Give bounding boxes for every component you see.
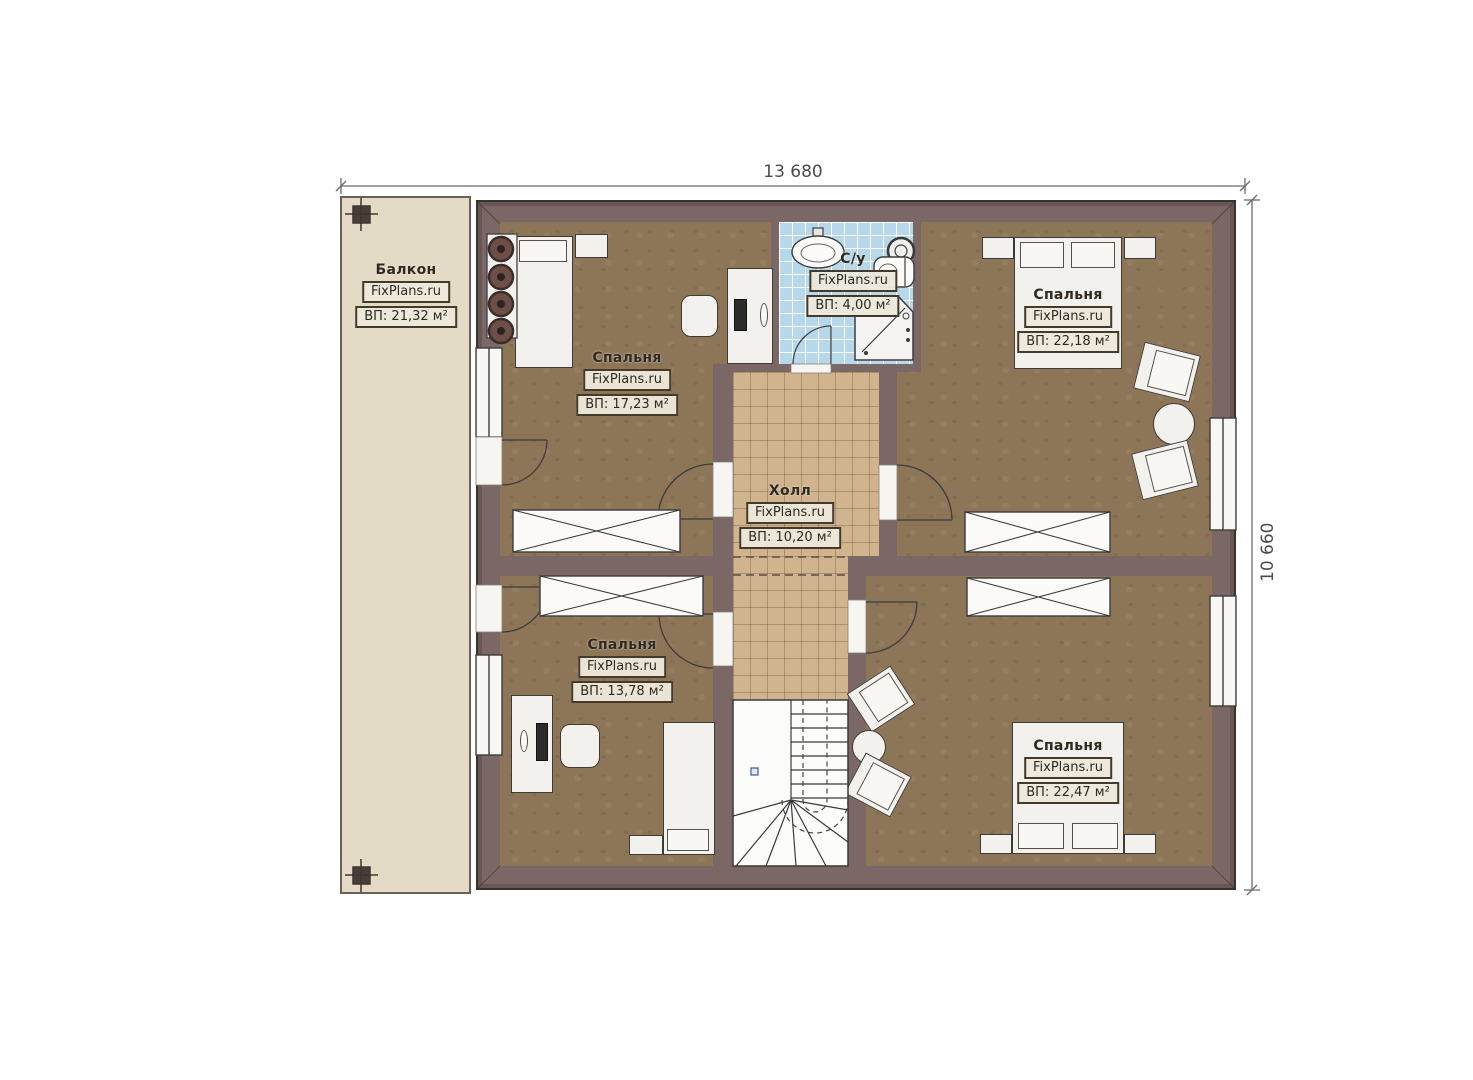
room-name: Спальня <box>587 637 656 653</box>
area-box: ВП: 17,23 м² <box>576 394 678 416</box>
area-box: ВП: 21,32 м² <box>355 306 457 328</box>
hall-label: Холл FixPlans.ru ВП: 10,20 м² <box>739 483 841 549</box>
room-name: Спальня <box>1033 287 1102 303</box>
balcony-label: Балкон FixPlans.ru ВП: 21,32 м² <box>355 262 457 328</box>
watermark-box: FixPlans.ru <box>583 369 671 391</box>
width-dimension: 13 680 <box>763 162 822 182</box>
watermark-box: FixPlans.ru <box>362 281 450 303</box>
room-name: Балкон <box>376 262 437 278</box>
ceiling-break-lines <box>733 557 848 575</box>
bathroom-label: С/у FixPlans.ru ВП: 4,00 м² <box>806 251 899 317</box>
area-box: ВП: 4,00 м² <box>806 295 899 317</box>
room-name: С/у <box>840 251 865 267</box>
height-dimension: 10 660 <box>1258 523 1278 582</box>
speaker-shelf-icon <box>487 234 517 343</box>
area-box: ВП: 10,20 м² <box>739 527 841 549</box>
bedroom-top-left-label: Спальня FixPlans.ru ВП: 17,23 м² <box>576 350 678 416</box>
room-name: Спальня <box>1033 738 1102 754</box>
area-box: ВП: 13,78 м² <box>571 681 673 703</box>
room-name: Холл <box>769 483 811 499</box>
watermark-box: FixPlans.ru <box>1024 306 1112 328</box>
watermark-box: FixPlans.ru <box>578 656 666 678</box>
watermark-box: FixPlans.ru <box>1024 757 1112 779</box>
staircase-icon <box>733 700 848 866</box>
plan-linework <box>0 0 1473 1080</box>
watermark-box: FixPlans.ru <box>746 502 834 524</box>
bedroom-bottom-right-label: Спальня FixPlans.ru ВП: 22,47 м² <box>1017 738 1119 804</box>
bedroom-top-right-label: Спальня FixPlans.ru ВП: 22,18 м² <box>1017 287 1119 353</box>
bedroom-bottom-left-label: Спальня FixPlans.ru ВП: 13,78 м² <box>571 637 673 703</box>
watermark-box: FixPlans.ru <box>809 270 897 292</box>
floor-plan: Балкон FixPlans.ru ВП: 21,32 м² Спальня … <box>0 0 1473 1080</box>
area-box: ВП: 22,18 м² <box>1017 331 1119 353</box>
room-name: Спальня <box>592 350 661 366</box>
area-box: ВП: 22,47 м² <box>1017 782 1119 804</box>
